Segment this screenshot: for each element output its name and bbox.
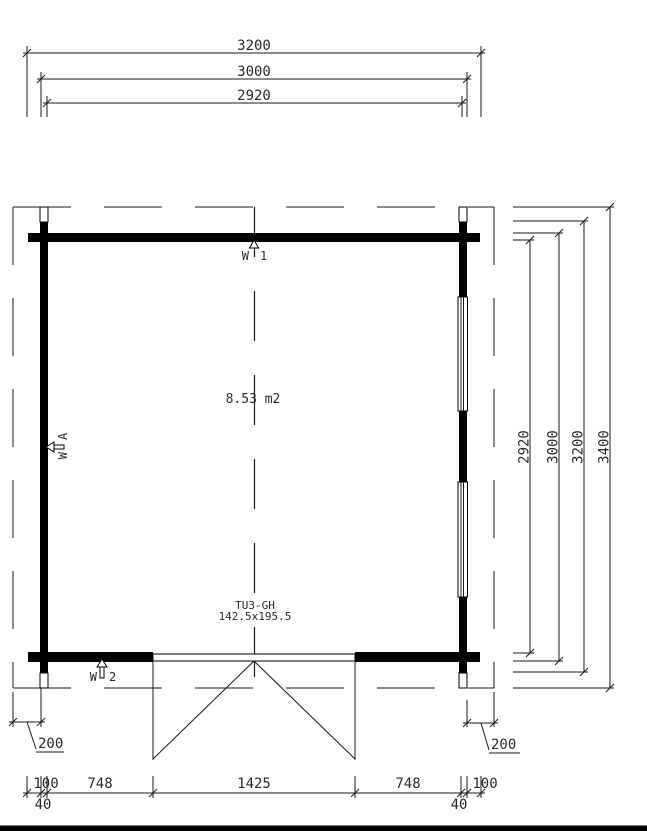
floor-plan-drawing: 3200 3000 2920 200 <box>0 0 647 831</box>
dim-overhang-right: 200 <box>491 737 516 753</box>
top-dimension-lines: 3200 3000 2920 <box>23 38 485 117</box>
room-area-label: 8.53 m2 <box>226 392 281 407</box>
dim-bottom-100-right: 100 <box>472 776 497 792</box>
dim-top-3200: 3200 <box>237 38 271 54</box>
dim-overhang-left: 200 <box>38 736 63 752</box>
dim-bottom-748-left: 748 <box>87 776 112 792</box>
overhang-dim-right: 200 <box>463 692 520 753</box>
dim-bottom-100-left: 100 <box>33 776 58 792</box>
wall-right <box>459 222 467 673</box>
dim-bottom-1425: 1425 <box>237 776 271 792</box>
door-size-label: 142.5x195.5 <box>219 610 292 623</box>
wall-marker-top-prefix: W <box>242 249 250 263</box>
wall-marker-top-id: 1 <box>260 249 267 263</box>
wall-marker-left: W A <box>46 432 70 459</box>
wall-marker-bottom-prefix: W <box>90 670 98 684</box>
sheet-footer-bar <box>0 826 647 831</box>
dim-top-3000: 3000 <box>237 64 271 80</box>
dim-right-3200: 3200 <box>571 430 587 464</box>
door-slab <box>153 654 355 661</box>
post-bottom-right <box>459 673 467 688</box>
dim-bottom-748-right: 748 <box>395 776 420 792</box>
dim-right-2920: 2920 <box>517 430 533 464</box>
wall-marker-left-prefix: W <box>56 451 70 459</box>
overhang-dim-left: 200 <box>9 667 64 752</box>
wall-marker-left-id: A <box>56 432 70 440</box>
wall-marker-bottom-id: 2 <box>109 670 116 684</box>
dim-right-3000: 3000 <box>546 430 562 464</box>
dim-bottom-40-left: 40 <box>35 797 52 813</box>
dim-top-2920: 2920 <box>237 88 271 104</box>
dim-bottom-40-right: 40 <box>451 797 468 813</box>
floor-plan-sheet: 3200 3000 2920 200 <box>0 0 647 831</box>
bottom-dimension-chain: 100 40 748 1425 748 40 100 <box>23 776 498 813</box>
wall-marker-bottom: W 2 <box>90 659 116 684</box>
post-bottom-left <box>40 673 48 688</box>
right-dimension-lines: 2920 3000 3200 3400 <box>513 203 614 692</box>
window-upper <box>458 297 468 411</box>
entrance-door: TU3-GH 142.5x195.5 <box>153 599 355 760</box>
window-lower <box>458 482 468 597</box>
dim-right-3400: 3400 <box>597 430 613 464</box>
post-top-right <box>459 207 467 222</box>
post-top-left <box>40 207 48 222</box>
